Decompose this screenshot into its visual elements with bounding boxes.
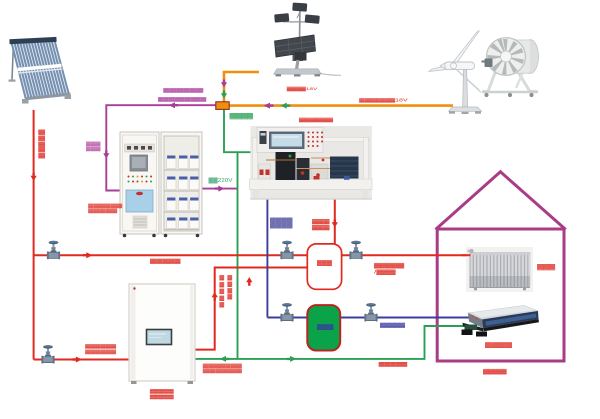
svg-text:▓: ▓ xyxy=(219,274,224,281)
svg-text:▓: ▓ xyxy=(38,129,46,136)
svg-text:▓: ▓ xyxy=(219,281,224,288)
svg-text:▓▓▓▓18V: ▓▓▓▓18V xyxy=(287,86,318,92)
svg-text:▓▓▓▓▓: ▓▓▓▓▓ xyxy=(379,361,409,367)
svg-text:/▓▓▓: /▓▓▓ xyxy=(374,270,396,276)
svg-text:▓▓▓: ▓▓▓ xyxy=(317,260,332,267)
svg-text:▓: ▓ xyxy=(38,146,46,153)
svg-text:▓: ▓ xyxy=(219,294,224,301)
svg-text:▓: ▓ xyxy=(38,140,46,147)
svg-text:▓▓▓▓▓▓: ▓▓▓▓▓▓ xyxy=(85,349,117,355)
svg-text:▓▓220V: ▓▓220V xyxy=(209,177,234,184)
svg-text:▓: ▓ xyxy=(219,301,224,308)
svg-text:▓: ▓ xyxy=(219,288,224,295)
svg-text:▓▓▓▓▓: ▓▓▓▓▓ xyxy=(380,322,406,328)
svg-text:▓▓▓: ▓▓▓ xyxy=(537,263,556,270)
svg-text:▓▓▓▓▓▓: ▓▓▓▓▓▓ xyxy=(163,88,203,94)
svg-text:▓: ▓ xyxy=(38,134,46,141)
svg-text:▓: ▓ xyxy=(227,293,232,300)
svg-text:▓▓▓▓▓▓: ▓▓▓▓▓▓ xyxy=(299,117,333,123)
svg-text:▓▓▓▓: ▓▓▓▓ xyxy=(483,369,507,375)
svg-text:▓▓▓▓: ▓▓▓▓ xyxy=(270,216,293,223)
svg-text:▓: ▓ xyxy=(227,287,232,294)
svg-text:▓: ▓ xyxy=(227,274,232,281)
svg-text:▓▓▓: ▓▓▓ xyxy=(312,224,330,231)
svg-text:▓▓▓▓▓▓: ▓▓▓▓▓▓ xyxy=(203,368,244,374)
svg-text:▓▓▓: ▓▓▓ xyxy=(86,146,102,152)
svg-text:▓▓▓▓▓: ▓▓▓▓▓ xyxy=(88,208,119,214)
svg-text:▓▓▓▓▓▓▓▓▓: ▓▓▓▓▓▓▓▓▓ xyxy=(158,96,206,102)
svg-text:▓▓▓▓: ▓▓▓▓ xyxy=(230,113,255,120)
svg-text:▓: ▓ xyxy=(38,152,46,159)
svg-text:▓▓▓: ▓▓▓ xyxy=(317,324,334,331)
svg-text:▓: ▓ xyxy=(227,281,232,288)
svg-text:▓▓▓▓▓: ▓▓▓▓▓ xyxy=(150,259,182,265)
svg-text:▓▓▓▓▓▓▓18V: ▓▓▓▓▓▓▓18V xyxy=(359,97,408,103)
svg-text:▓▓▓▓: ▓▓▓▓ xyxy=(150,394,175,400)
svg-text:▓▓▓▓: ▓▓▓▓ xyxy=(270,222,293,229)
svg-text:▓▓▓▓▓: ▓▓▓▓▓ xyxy=(374,263,405,269)
svg-text:▓▓▓▓: ▓▓▓▓ xyxy=(485,341,512,348)
